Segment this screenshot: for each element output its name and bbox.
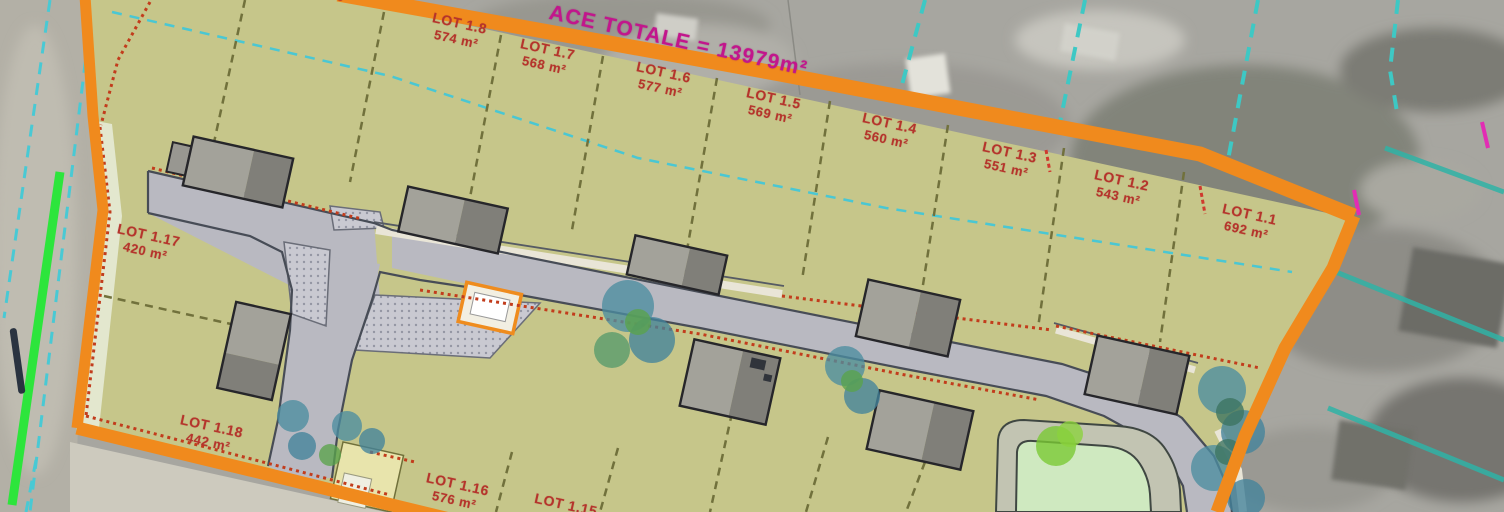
site-plan-graphics [0, 0, 1504, 512]
site-plan-canvas: ACE TOTALE = 13979m² LOT 1.1692 m²LOT 1.… [0, 0, 1504, 512]
